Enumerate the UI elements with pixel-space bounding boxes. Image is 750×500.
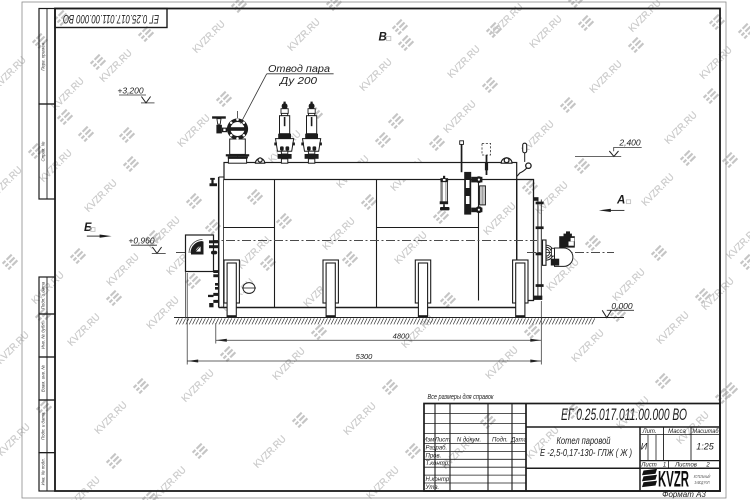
svg-text:KVZR.RU: KVZR.RU [640,172,677,209]
svg-text:Котел паровой: Котел паровой [557,435,611,447]
svg-text:KVZR.RU: KVZR.RU [252,434,289,471]
svg-text:KVZR.RU: KVZR.RU [442,99,479,136]
svg-text:Т.контр.: Т.контр. [426,461,450,467]
svg-text:KVZR.RU: KVZR.RU [66,312,103,349]
svg-text:А: А [616,194,625,206]
svg-text:Перв. примен.: Перв. примен. [41,42,46,71]
svg-text:KVZR.RU: KVZR.RU [655,310,692,347]
svg-text:Отвод пара: Отвод пара [268,64,330,75]
svg-text:KVZR.RU: KVZR.RU [482,201,519,238]
svg-text:Лит.: Лит. [641,429,656,435]
svg-text:Н.контр.: Н.контр. [426,477,451,483]
svg-text:KVZR.RU: KVZR.RU [98,48,135,85]
svg-text:2: 2 [705,463,710,469]
svg-text:KVZR.RU: KVZR.RU [611,267,648,304]
svg-text:Инв. № подл.: Инв. № подл. [41,458,46,485]
svg-text:KVZR.RU: KVZR.RU [484,345,521,382]
svg-text:+0,960: +0,960 [128,236,155,246]
svg-text:KVZR.RU: KVZR.RU [528,14,565,51]
svg-text:4800: 4800 [393,331,411,340]
svg-text:KVZR.RU: KVZR.RU [145,295,182,332]
svg-text:KVZR.RU: KVZR.RU [83,178,120,215]
svg-text:0,000: 0,000 [611,301,633,311]
svg-text:KVZR.RU: KVZR.RU [321,216,358,253]
svg-text:KVZR.RU: KVZR.RU [342,401,379,438]
svg-text:Ду 200: Ду 200 [279,76,318,87]
svg-text:Лист: Лист [640,463,656,469]
svg-text:КОТЕЛЬНЫЙ: КОТЕЛЬНЫЙ [694,474,711,479]
svg-text:Подп.: Подп. [492,437,508,443]
svg-text:KVZR.RU: KVZR.RU [93,400,130,437]
svg-text:KVZR.RU: KVZR.RU [176,113,213,150]
svg-text:KVZR.RU: KVZR.RU [0,422,33,459]
svg-text:Утв.: Утв. [425,485,440,491]
svg-text:N докум.: N докум. [457,437,481,443]
svg-text:Масса: Масса [668,429,686,435]
svg-text:Справ. №: Справ. № [41,141,46,161]
svg-text:+3,200: +3,200 [117,85,144,95]
svg-text:ЕГ 0.25.017.011.00.000 ВО: ЕГ 0.25.017.011.00.000 ВО [561,405,687,424]
svg-text:KVZR.RU: KVZR.RU [446,44,483,81]
svg-text:KVZR.RU: KVZR.RU [271,346,308,383]
svg-text:ЗАВОД РЭП: ЗАВОД РЭП [695,480,710,485]
svg-text:KVZR.RU: KVZR.RU [286,17,323,54]
svg-text:Подп. и дата: Подп. и дата [41,412,46,440]
svg-text:KVZR.RU: KVZR.RU [358,57,395,94]
svg-text:KVZR.RU: KVZR.RU [30,270,67,307]
svg-text:2,400: 2,400 [618,138,641,148]
svg-text:KVZR.RU: KVZR.RU [489,2,526,39]
svg-text:KVZR.RU: KVZR.RU [0,165,25,202]
svg-text:KVZR.RU: KVZR.RU [588,59,625,96]
svg-text:KVZR.RU: KVZR.RU [0,55,29,92]
svg-text:KVZR.RU: KVZR.RU [180,368,217,405]
svg-text:Пров.: Пров. [426,453,442,459]
svg-text:Масштаб: Масштаб [693,429,720,435]
svg-text:Все размеры для справок: Все размеры для справок [428,392,494,401]
svg-text:KVZR.RU: KVZR.RU [365,465,402,500]
svg-text:KVZR.RU: KVZR.RU [0,330,32,367]
svg-text:KVZR.RU: KVZR.RU [191,19,228,56]
svg-text:KVZR.RU: KVZR.RU [570,328,607,365]
svg-text:И: И [641,442,648,452]
svg-text:Е -2,5-0,17-130- ГЛЖ ( Ж ): Е -2,5-0,17-130- ГЛЖ ( Ж ) [540,447,632,459]
svg-text:KVZR.RU: KVZR.RU [698,45,735,82]
svg-text:Дата: Дата [510,437,527,443]
svg-text:KVZR.RU: KVZR.RU [105,252,142,289]
svg-text:Инв. № дубл.: Инв. № дубл. [41,322,46,349]
svg-text:5300: 5300 [356,352,374,361]
svg-text:KVZR.RU: KVZR.RU [663,110,700,147]
svg-text:KVZR.RU: KVZR.RU [152,465,189,500]
svg-text:Взам. инв. №: Взам. инв. № [41,365,46,392]
svg-text:Разраб.: Разраб. [426,445,448,451]
svg-text:KVZR.RU: KVZR.RU [534,180,571,217]
svg-text:KVZR.RU: KVZR.RU [627,0,664,35]
svg-text:Лист: Лист [434,437,450,443]
svg-text:KVZR.RU: KVZR.RU [725,225,750,262]
svg-text:В: В [379,31,387,43]
svg-text:Подп. и дата: Подп. и дата [41,281,46,309]
svg-text:1:25: 1:25 [696,442,715,452]
svg-text:KVZR: KVZR [658,467,689,492]
svg-text:ЕГ 0.25.017.011.00.000 ВО: ЕГ 0.25.017.011.00.000 ВО [63,12,159,24]
svg-text:KVZR.RU: KVZR.RU [66,475,103,500]
